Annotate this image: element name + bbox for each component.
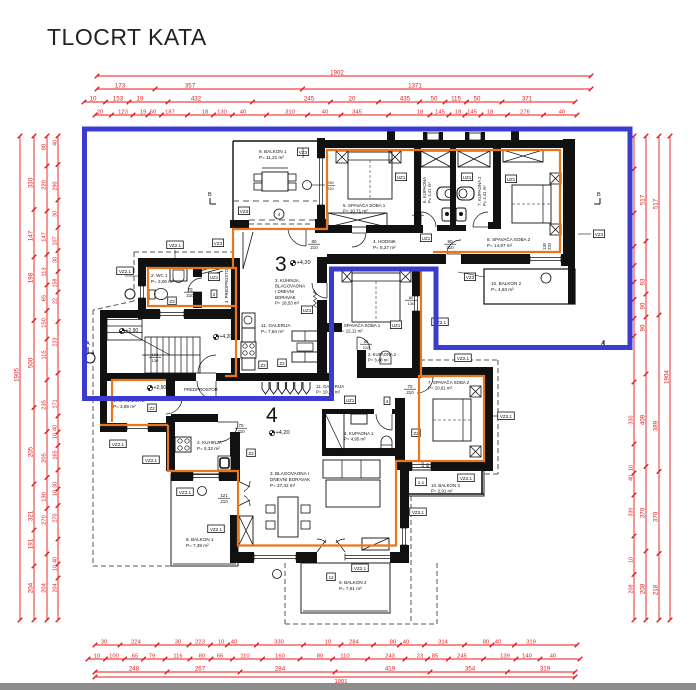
svg-text:173: 173: [115, 82, 126, 89]
svg-text:4: 4: [266, 404, 278, 427]
svg-text:80: 80: [448, 239, 453, 244]
svg-text:4: 4: [386, 399, 389, 404]
svg-text:113: 113: [41, 267, 47, 276]
svg-text:+4,20: +4,20: [220, 334, 233, 340]
svg-text:VZ2.1: VZ2.1: [119, 269, 132, 274]
svg-text:P= 4,95 m²: P= 4,95 m²: [344, 437, 366, 442]
svg-text:VZ2.1: VZ2.1: [145, 458, 158, 463]
svg-text:UZ1: UZ1: [210, 275, 219, 280]
svg-text:145: 145: [467, 109, 477, 115]
svg-text:VZ2.1: VZ2.1: [112, 442, 125, 447]
svg-text:+2,90: +2,90: [126, 328, 139, 334]
svg-text:85: 85: [432, 653, 438, 659]
svg-text:10: 10: [90, 95, 97, 102]
svg-text:19: 19: [140, 109, 146, 115]
svg-text:+4,20: +4,20: [297, 260, 311, 266]
svg-text:208: 208: [639, 583, 646, 594]
svg-text:65: 65: [41, 295, 47, 301]
svg-text:10: 10: [94, 653, 100, 659]
svg-text:330: 330: [628, 508, 634, 517]
svg-text:+4,20: +4,20: [276, 430, 290, 436]
svg-text:79: 79: [149, 653, 155, 659]
svg-text:1.1: 1.1: [418, 480, 425, 485]
svg-text:12: 12: [328, 575, 334, 580]
svg-text:130: 130: [217, 109, 227, 115]
svg-text:130: 130: [41, 492, 47, 502]
svg-text:2. WC 1: 2. WC 1: [151, 273, 168, 278]
svg-text:4. KUPAONA 1: 4. KUPAONA 1: [344, 431, 374, 436]
svg-text:10. BALKON 2: 10. BALKON 2: [491, 281, 522, 286]
svg-text:243: 243: [385, 653, 395, 659]
svg-text:150: 150: [41, 318, 47, 328]
svg-text:3: 3: [275, 253, 287, 276]
svg-text:153: 153: [113, 95, 124, 102]
svg-text:4. HODNIK: 4. HODNIK: [373, 239, 397, 244]
svg-text:VZ2.1: VZ2.1: [457, 356, 470, 361]
svg-text:145: 145: [435, 109, 445, 115]
svg-text:P= 10,07 m²: P= 10,07 m²: [316, 389, 341, 394]
svg-text:220: 220: [547, 242, 552, 250]
svg-text:P= 3,89 m²: P= 3,89 m²: [113, 404, 136, 409]
svg-text:2: 2: [213, 292, 216, 297]
svg-text:40: 40: [231, 639, 237, 645]
svg-text:30: 30: [101, 639, 107, 645]
svg-text:319: 319: [526, 639, 536, 645]
svg-text:50: 50: [431, 95, 438, 102]
svg-text:P= 5,2 m²: P= 5,2 m²: [230, 284, 235, 303]
svg-text:DNEVNI BORAVAK: DNEVNI BORAVAK: [270, 477, 311, 482]
svg-text:80: 80: [41, 144, 47, 150]
svg-text:30: 30: [52, 211, 58, 217]
svg-text:90: 90: [425, 463, 430, 468]
svg-text:210: 210: [363, 345, 370, 350]
svg-text:5. SPAVAČA SOBA 1: 5. SPAVAČA SOBA 1: [339, 323, 381, 328]
svg-text:517: 517: [652, 198, 659, 209]
svg-text:354: 354: [465, 665, 476, 672]
svg-text:P= 3,48 m²: P= 3,48 m²: [368, 357, 389, 362]
svg-text:171: 171: [52, 400, 58, 409]
svg-text:P= 18,53 m²: P= 18,53 m²: [275, 300, 300, 305]
svg-text:VZ3: VZ3: [595, 232, 604, 237]
svg-text:P= 14,97 m²: P= 14,97 m²: [487, 243, 513, 248]
svg-text:100: 100: [109, 653, 119, 659]
svg-text:UZ1: UZ1: [392, 323, 401, 328]
svg-text:10: 10: [52, 433, 58, 439]
svg-text:147: 147: [41, 232, 47, 242]
svg-text:276: 276: [520, 109, 530, 115]
svg-text:40: 40: [628, 475, 634, 481]
svg-text:210: 210: [414, 216, 422, 221]
svg-text:40: 40: [495, 639, 501, 645]
svg-text:205: 205: [41, 453, 47, 463]
svg-text:19: 19: [137, 95, 144, 102]
svg-text:3. PREDPROSTOR: 3. PREDPROSTOR: [224, 266, 229, 303]
svg-text:409: 409: [639, 414, 646, 425]
svg-text:319: 319: [540, 665, 551, 672]
svg-text:330: 330: [628, 416, 634, 425]
svg-text:VZ2.1: VZ2.1: [210, 527, 223, 532]
svg-text:UZ1: UZ1: [463, 175, 472, 180]
svg-text:70: 70: [408, 384, 413, 389]
svg-text:140: 140: [522, 653, 532, 659]
svg-text:VZ2.1: VZ2.1: [179, 490, 192, 495]
svg-text:2. KUHINJA: 2. KUHINJA: [197, 440, 223, 445]
svg-text:18: 18: [202, 109, 208, 115]
svg-text:235: 235: [41, 400, 47, 410]
svg-text:230: 230: [327, 180, 334, 185]
svg-text:321: 321: [27, 510, 34, 521]
svg-text:18: 18: [417, 109, 423, 115]
svg-text:40: 40: [52, 140, 58, 146]
svg-text:5. SPAVAČA SOBA 1: 5. SPAVAČA SOBA 1: [343, 202, 386, 208]
svg-text:371: 371: [522, 95, 533, 102]
svg-text:+2,90: +2,90: [154, 385, 167, 391]
svg-text:P= 4,41 m²: P= 4,41 m²: [427, 182, 432, 203]
svg-text:204: 204: [27, 582, 34, 593]
svg-text:BORAVAK: BORAVAK: [275, 295, 296, 300]
svg-text:VZ2.1: VZ2.1: [500, 414, 513, 419]
svg-text:270: 270: [41, 515, 47, 525]
svg-text:224: 224: [131, 639, 141, 645]
svg-text:1904: 1904: [663, 370, 670, 384]
svg-text:P= 12,11 m²: P= 12,11 m²: [339, 329, 363, 334]
svg-text:8. SPAVAČA SOBA 2: 8. SPAVAČA SOBA 2: [487, 236, 531, 242]
svg-text:208: 208: [628, 585, 634, 594]
svg-text:65: 65: [217, 653, 223, 659]
svg-text:110: 110: [240, 653, 249, 659]
svg-text:3. KUHINJA,: 3. KUHINJA,: [275, 278, 300, 283]
svg-text:389: 389: [652, 420, 659, 431]
svg-text:Z2: Z2: [279, 361, 285, 366]
svg-text:Z2: Z2: [149, 406, 155, 411]
svg-text:248: 248: [129, 665, 140, 672]
svg-text:123: 123: [118, 109, 128, 115]
svg-text:115: 115: [451, 95, 461, 102]
svg-text:I DNEVNI: I DNEVNI: [275, 289, 294, 294]
svg-text:4: 4: [278, 212, 281, 218]
svg-text:BLAGOVAONA: BLAGOVAONA: [275, 284, 305, 289]
svg-text:VZ3: VZ3: [214, 241, 223, 246]
svg-text:30: 30: [175, 639, 181, 645]
svg-text:130: 130: [408, 301, 415, 306]
svg-text:P= 7,64 m²: P= 7,64 m²: [261, 329, 284, 334]
svg-text:233: 233: [52, 338, 58, 347]
svg-text:1371: 1371: [408, 82, 422, 89]
svg-text:40: 40: [52, 557, 58, 563]
svg-text:245: 245: [304, 95, 315, 102]
svg-text:310: 310: [285, 109, 295, 115]
svg-text:130: 130: [152, 358, 159, 363]
svg-text:284: 284: [275, 665, 286, 672]
svg-text:40: 40: [403, 639, 409, 645]
svg-text:7. SPAVAČA SOBA 2: 7. SPAVAČA SOBA 2: [428, 380, 470, 385]
svg-text:220: 220: [327, 186, 334, 191]
svg-text:314: 314: [438, 639, 448, 645]
svg-text:P= 7,39 m²: P= 7,39 m²: [186, 543, 209, 548]
svg-text:60: 60: [150, 109, 156, 115]
svg-text:Z2: Z2: [248, 451, 254, 456]
svg-text:80: 80: [199, 653, 205, 659]
svg-text:70: 70: [188, 287, 193, 292]
svg-text:80: 80: [317, 653, 323, 659]
svg-text:UZ1: UZ1: [346, 398, 355, 403]
svg-text:2. KUPAONA 2: 2. KUPAONA 2: [368, 352, 397, 357]
svg-text:VZ3: VZ3: [466, 275, 475, 280]
svg-text:204: 204: [41, 582, 47, 592]
svg-text:80: 80: [409, 295, 414, 300]
svg-text:165: 165: [52, 451, 58, 460]
svg-text:40: 40: [322, 109, 328, 115]
svg-text:P= 10,71 m²: P= 10,71 m²: [343, 208, 368, 213]
svg-text:18: 18: [487, 109, 493, 115]
svg-text:198: 198: [27, 272, 34, 283]
svg-text:B: B: [597, 192, 601, 198]
svg-text:TLOCRT KATA: TLOCRT KATA: [47, 24, 207, 50]
svg-text:UZ1: UZ1: [397, 175, 406, 180]
svg-text:40: 40: [52, 425, 58, 431]
svg-text:75: 75: [416, 210, 421, 215]
svg-text:P= 4,41 m²: P= 4,41 m²: [482, 185, 487, 206]
svg-text:P= 4,63 m²: P= 4,63 m²: [491, 287, 514, 292]
svg-text:40: 40: [240, 109, 246, 115]
svg-text:P= 10,61 m²: P= 10,61 m²: [428, 386, 453, 391]
svg-text:210: 210: [446, 245, 454, 250]
svg-text:330: 330: [274, 639, 284, 645]
svg-text:9. BALKON 1: 9. BALKON 1: [259, 149, 287, 154]
svg-text:70: 70: [239, 423, 244, 428]
svg-text:90: 90: [639, 302, 646, 309]
svg-text:10: 10: [52, 565, 58, 571]
svg-text:40: 40: [550, 653, 556, 659]
svg-text:8. BALKON 1: 8. BALKON 1: [186, 537, 214, 542]
svg-text:267: 267: [195, 665, 206, 672]
svg-text:357: 357: [185, 82, 196, 89]
svg-text:80: 80: [483, 639, 489, 645]
svg-text:80: 80: [390, 639, 396, 645]
svg-text:290: 290: [52, 182, 58, 191]
svg-text:VZ2.1: VZ2.1: [169, 243, 182, 248]
svg-text:191: 191: [27, 538, 34, 549]
svg-text:P= 11,21 m²: P= 11,21 m²: [259, 155, 284, 160]
svg-text:210: 210: [406, 390, 414, 395]
svg-text:20: 20: [97, 109, 103, 115]
svg-text:P= 7,61 m²: P= 7,61 m²: [339, 586, 362, 591]
svg-text:435: 435: [400, 95, 411, 102]
svg-text:18: 18: [455, 109, 461, 115]
svg-text:284: 284: [349, 639, 359, 645]
svg-text:110: 110: [340, 653, 349, 659]
svg-text:345: 345: [352, 109, 362, 115]
svg-text:22: 22: [52, 298, 58, 304]
svg-text:80: 80: [312, 239, 317, 244]
svg-text:121: 121: [220, 493, 228, 498]
svg-text:139: 139: [500, 653, 510, 659]
svg-text:93: 93: [639, 278, 646, 285]
svg-text:270: 270: [52, 514, 58, 523]
svg-text:10. BALKON 3: 10. BALKON 3: [431, 483, 460, 488]
svg-text:VZ2.1: VZ2.1: [460, 476, 473, 481]
svg-text:P= 37,42 m²: P= 37,42 m²: [270, 483, 296, 488]
svg-text:10: 10: [52, 490, 58, 496]
svg-text:90: 90: [639, 324, 646, 331]
svg-text:1902: 1902: [330, 69, 344, 76]
svg-text:65: 65: [132, 653, 138, 659]
svg-text:30: 30: [52, 257, 58, 263]
svg-text:210: 210: [220, 499, 228, 504]
svg-text:Z2: Z2: [260, 363, 266, 368]
svg-text:UZ1: UZ1: [422, 236, 431, 241]
svg-text:40: 40: [559, 109, 565, 115]
svg-text:147: 147: [27, 230, 34, 241]
svg-text:B: B: [208, 192, 212, 198]
svg-text:218: 218: [652, 584, 659, 595]
svg-text:210: 210: [186, 293, 194, 298]
svg-text:500: 500: [27, 357, 34, 368]
svg-text:245: 245: [457, 653, 467, 659]
svg-text:VZ3: VZ3: [240, 209, 249, 214]
svg-text:105: 105: [152, 352, 159, 357]
svg-text:10: 10: [325, 639, 331, 645]
svg-text:517: 517: [639, 194, 646, 205]
svg-text:187: 187: [165, 109, 175, 115]
svg-text:20: 20: [349, 95, 356, 102]
svg-text:10: 10: [218, 639, 224, 645]
svg-text:107: 107: [52, 237, 58, 246]
svg-text:210: 210: [310, 245, 318, 250]
svg-text:223: 223: [195, 639, 205, 645]
svg-text:VZ2.1: VZ2.1: [354, 566, 367, 571]
svg-text:VZ2.1: VZ2.1: [412, 510, 425, 515]
svg-text:370: 370: [639, 507, 646, 518]
svg-text:10: 10: [628, 465, 634, 471]
svg-text:UZ1: UZ1: [507, 177, 516, 182]
svg-text:P= 2,91 m²: P= 2,91 m²: [431, 488, 453, 493]
svg-text:50: 50: [474, 95, 481, 102]
svg-text:158: 158: [52, 279, 58, 288]
svg-text:3. BLAGOVAONA I: 3. BLAGOVAONA I: [270, 471, 309, 476]
svg-text:205: 205: [27, 446, 34, 457]
svg-text:220: 220: [41, 180, 47, 190]
svg-text:P= 5,27 m²: P= 5,27 m²: [373, 245, 396, 250]
svg-text:10: 10: [628, 557, 634, 563]
svg-text:210: 210: [237, 429, 245, 434]
svg-text:PREDPROSTOR: PREDPROSTOR: [184, 387, 218, 392]
svg-text:330: 330: [27, 177, 34, 188]
svg-text:23: 23: [417, 653, 423, 659]
svg-text:116: 116: [173, 653, 182, 659]
svg-text:115: 115: [41, 350, 47, 359]
svg-text:P= 5,32 m²: P= 5,32 m²: [197, 446, 220, 451]
svg-text:204: 204: [52, 584, 58, 593]
svg-text:11. GALERIJA: 11. GALERIJA: [261, 323, 291, 328]
svg-text:Z3: Z3: [169, 299, 175, 304]
svg-text:9. BALKON 2: 9. BALKON 2: [339, 580, 367, 585]
svg-text:419: 419: [385, 665, 396, 672]
svg-text:370: 370: [652, 511, 659, 522]
svg-text:432: 432: [191, 95, 202, 102]
svg-text:P= 3,06 m²: P= 3,06 m²: [151, 279, 174, 284]
svg-text:65: 65: [364, 339, 369, 344]
svg-text:30: 30: [52, 482, 58, 488]
svg-text:1905: 1905: [13, 368, 20, 382]
svg-text:160: 160: [275, 653, 285, 659]
svg-text:UZ1: UZ1: [303, 308, 312, 313]
